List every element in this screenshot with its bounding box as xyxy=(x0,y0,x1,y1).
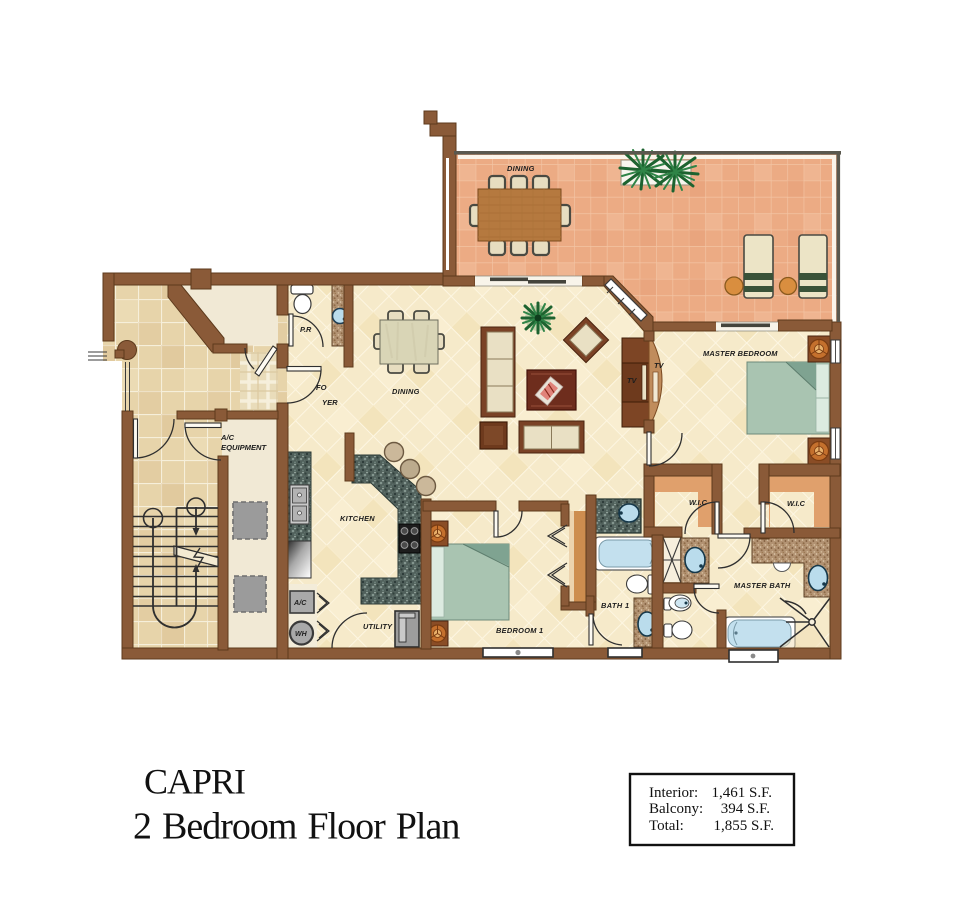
svg-text:BATH 1: BATH 1 xyxy=(601,601,630,610)
svg-text:CAPRI: CAPRI xyxy=(144,762,245,802)
svg-text:W.I.C: W.I.C xyxy=(689,498,708,507)
svg-text:Balcony:: Balcony: xyxy=(649,801,703,817)
svg-text:EQUIPMENT: EQUIPMENT xyxy=(221,443,268,452)
svg-text:TV: TV xyxy=(627,376,638,385)
svg-text:MASTER BEDROOM: MASTER BEDROOM xyxy=(703,349,778,358)
svg-text:Total:: Total: xyxy=(649,818,684,834)
svg-text:1,461 S.F.: 1,461 S.F. xyxy=(712,785,772,801)
svg-text:YER: YER xyxy=(322,398,338,407)
svg-text:P.R: P.R xyxy=(300,325,312,334)
svg-text:KITCHEN: KITCHEN xyxy=(340,514,375,523)
svg-text:394 S.F.: 394 S.F. xyxy=(721,801,770,817)
svg-text:DINING: DINING xyxy=(392,387,420,396)
svg-text:TV: TV xyxy=(654,361,665,370)
svg-text:DINING: DINING xyxy=(507,164,535,173)
svg-text:Interior:: Interior: xyxy=(649,785,698,801)
svg-text:WH: WH xyxy=(295,631,308,638)
svg-text:W.I.C: W.I.C xyxy=(787,499,806,508)
svg-text:MASTER BATH: MASTER BATH xyxy=(734,581,791,590)
svg-text:2 Bedroom Floor Plan: 2 Bedroom Floor Plan xyxy=(133,806,460,848)
svg-text:FO: FO xyxy=(316,383,327,392)
svg-text:1,855 S.F.: 1,855 S.F. xyxy=(714,818,774,834)
svg-text:A/C: A/C xyxy=(293,598,307,607)
svg-text:BEDROOM 1: BEDROOM 1 xyxy=(496,626,543,635)
svg-text:A/C: A/C xyxy=(220,433,235,442)
svg-text:UTILITY: UTILITY xyxy=(363,622,393,631)
